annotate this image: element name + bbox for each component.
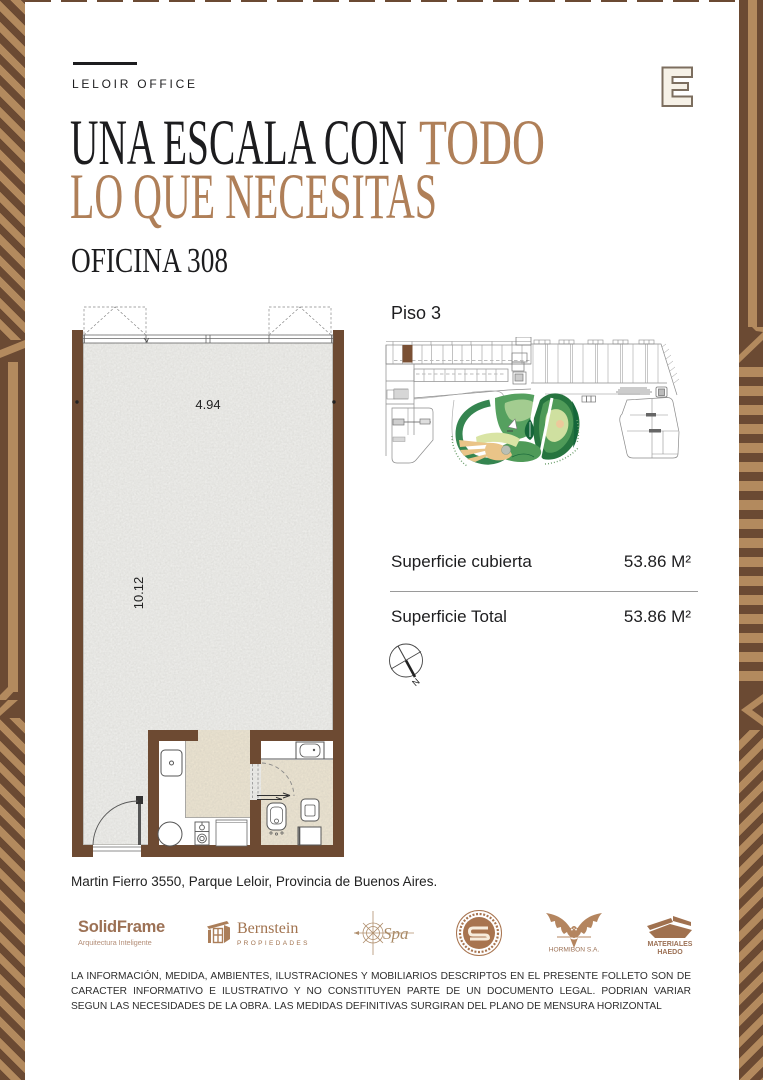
svg-text:MATERIALES: MATERIALES [648, 941, 693, 948]
svg-text:10.12: 10.12 [131, 577, 146, 610]
svg-text:HORMIBON S.A.: HORMIBON S.A. [549, 947, 600, 954]
svg-text:TODO: TODO [419, 107, 545, 179]
svg-text:4.94: 4.94 [195, 397, 220, 412]
svg-text:OFICINA 308: OFICINA 308 [71, 241, 228, 280]
svg-text:LO QUE NECESITAS: LO QUE NECESITAS [70, 161, 437, 233]
svg-text:Spa: Spa [383, 924, 409, 943]
svg-text:N: N [410, 676, 422, 688]
svg-text:HAEDO: HAEDO [657, 949, 683, 954]
